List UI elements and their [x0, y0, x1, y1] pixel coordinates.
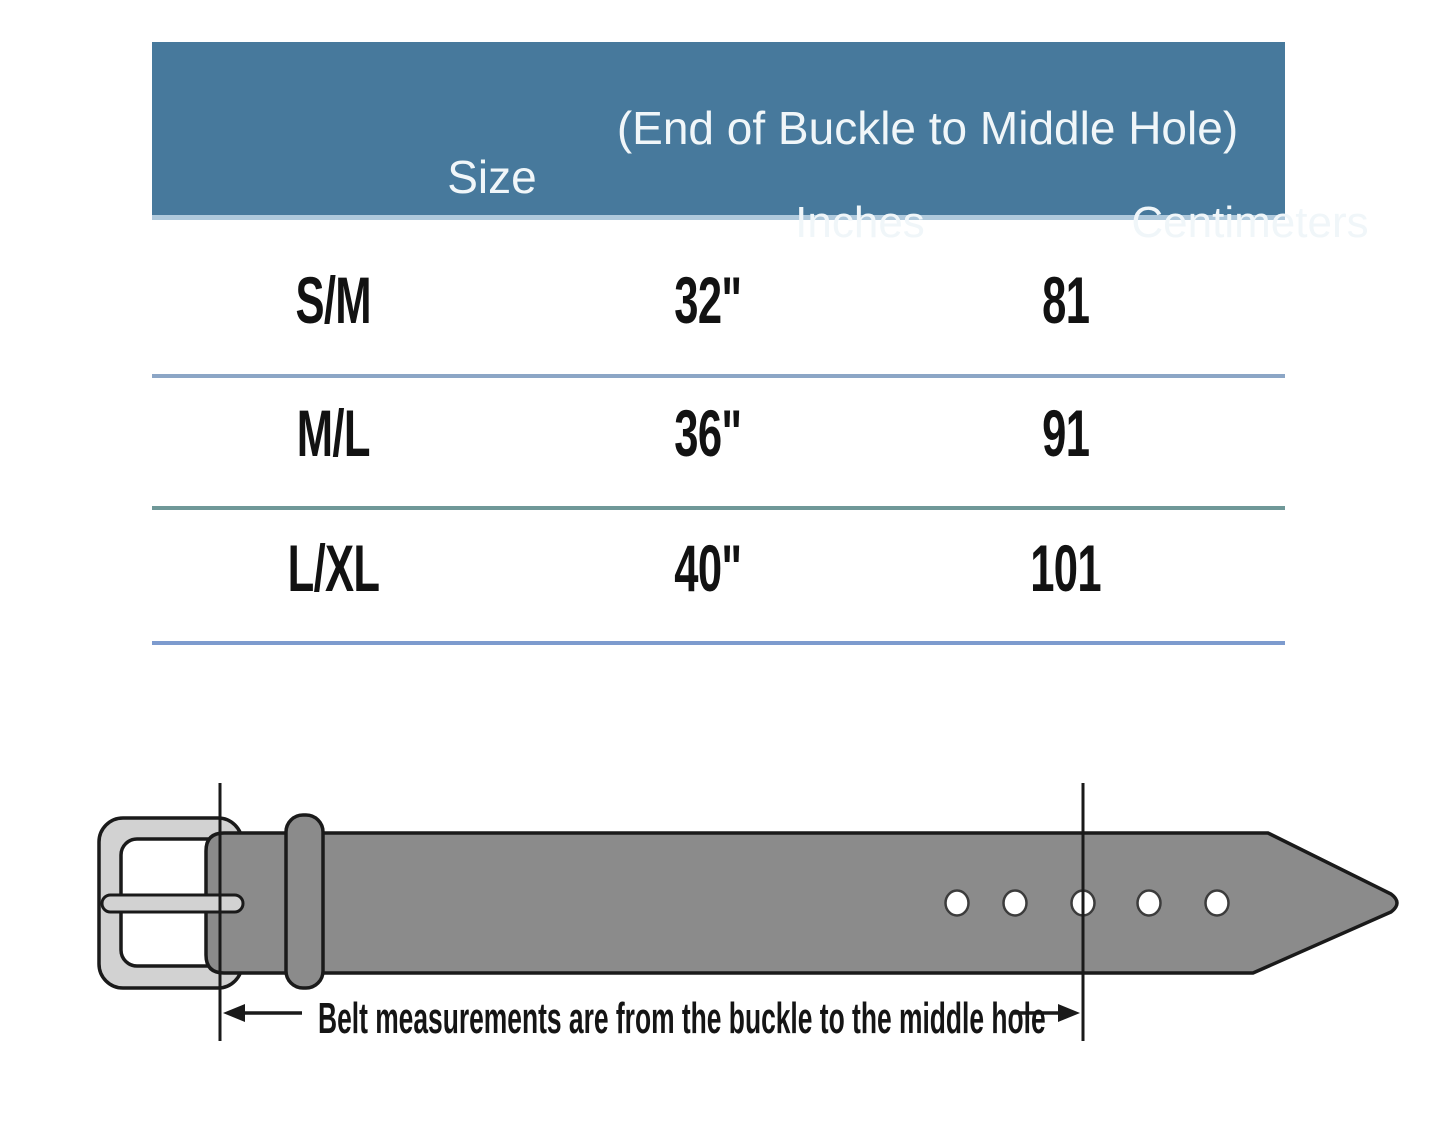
- belt-hole: [1206, 891, 1229, 916]
- row-divider: [152, 641, 1285, 645]
- table-row-inches: 36": [508, 400, 908, 466]
- row-divider: [152, 506, 1285, 510]
- table-header: Size (End of Buckle to Middle Hole) Inch…: [152, 42, 1285, 220]
- size-value: L/XL: [287, 535, 379, 601]
- table-row-size: M/L: [133, 400, 533, 466]
- measurement-annotation: Belt measurements are from the buckle to…: [318, 997, 1046, 1041]
- belt-hole: [946, 891, 969, 916]
- left-arrow-icon: [223, 1004, 302, 1022]
- belt-hole: [1138, 891, 1161, 916]
- size-value: S/M: [295, 267, 370, 333]
- centimeters-value: 81: [1042, 267, 1089, 333]
- belt-diagram: [0, 760, 1445, 1123]
- table-row-size: S/M: [133, 267, 533, 333]
- inches-value: 32": [674, 267, 741, 333]
- belt-hole: [1004, 891, 1027, 916]
- table-row-centimeters: 91: [866, 400, 1266, 466]
- table-row-centimeters: 101: [866, 535, 1266, 601]
- row-divider: [152, 374, 1285, 378]
- header-size-label: Size: [362, 154, 622, 200]
- table-row-inches: 32": [508, 267, 908, 333]
- centimeters-value: 101: [1031, 535, 1102, 601]
- belt-size-chart: Size (End of Buckle to Middle Hole) Inch…: [0, 0, 1445, 1123]
- header-centimeters-label: Centimeters: [960, 201, 1445, 245]
- inches-value: 36": [674, 400, 741, 466]
- belt-loop: [286, 815, 323, 988]
- table-row-inches: 40": [508, 535, 908, 601]
- buckle-prong: [102, 895, 243, 912]
- table-row-size: L/XL: [133, 535, 533, 601]
- inches-value: 40": [674, 535, 741, 601]
- centimeters-value: 91: [1042, 400, 1089, 466]
- size-value: M/L: [296, 400, 369, 466]
- table-row-centimeters: 81: [866, 267, 1266, 333]
- header-span-label: (End of Buckle to Middle Hole): [570, 105, 1285, 151]
